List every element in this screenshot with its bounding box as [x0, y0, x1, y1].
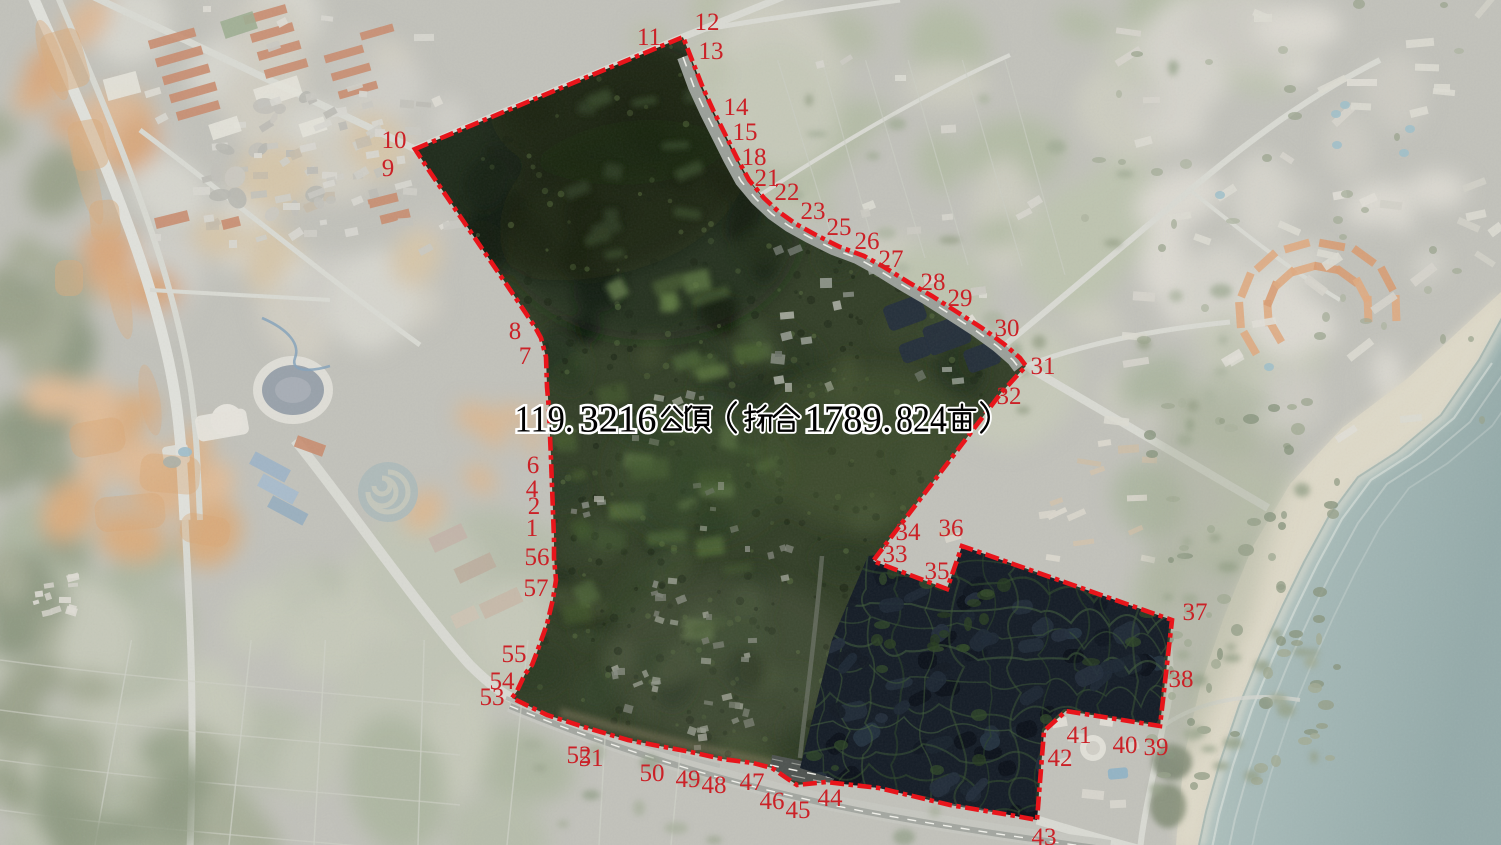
svg-text:37: 37: [1183, 599, 1208, 626]
svg-text:6: 6: [527, 452, 540, 479]
svg-text:47: 47: [740, 769, 765, 796]
svg-text:1789.: 1789.: [805, 399, 892, 441]
svg-text:25: 25: [827, 214, 852, 241]
svg-text:31: 31: [1031, 353, 1056, 380]
svg-text:12: 12: [695, 9, 720, 36]
svg-text:49: 49: [676, 766, 701, 793]
svg-text:42: 42: [1048, 745, 1073, 772]
svg-text:44: 44: [818, 785, 844, 812]
svg-text:15: 15: [733, 119, 758, 146]
svg-text:52: 52: [567, 742, 592, 769]
svg-text:34: 34: [896, 519, 922, 546]
svg-text:7: 7: [519, 343, 532, 370]
svg-text:9: 9: [382, 155, 395, 182]
svg-text:54: 54: [490, 668, 516, 695]
svg-text:50: 50: [640, 760, 665, 787]
svg-text:23: 23: [801, 198, 826, 225]
svg-text:48: 48: [702, 772, 727, 799]
svg-text:11: 11: [637, 24, 661, 51]
svg-text:13: 13: [699, 38, 724, 65]
svg-text:56: 56: [525, 544, 550, 571]
svg-text:38: 38: [1169, 666, 1194, 693]
svg-text:29: 29: [948, 285, 973, 312]
svg-text:35: 35: [925, 558, 950, 585]
svg-text:10: 10: [382, 127, 407, 154]
svg-text:22: 22: [775, 179, 800, 206]
svg-text:40: 40: [1113, 732, 1138, 759]
svg-text:119.: 119.: [515, 399, 574, 441]
svg-text:43: 43: [1032, 824, 1057, 845]
svg-text:57: 57: [524, 575, 549, 602]
svg-text:27: 27: [879, 246, 904, 273]
svg-text:28: 28: [921, 269, 946, 296]
svg-text:30: 30: [995, 315, 1020, 342]
svg-text:26: 26: [855, 228, 880, 255]
svg-text:32: 32: [997, 383, 1022, 410]
svg-text:45: 45: [786, 797, 811, 824]
svg-text:4: 4: [526, 476, 539, 503]
svg-text:8: 8: [509, 318, 522, 345]
svg-text:824: 824: [896, 399, 947, 441]
svg-text:3216: 3216: [580, 399, 657, 441]
svg-text:55: 55: [502, 641, 527, 668]
svg-text:14: 14: [724, 94, 750, 121]
svg-text:36: 36: [939, 515, 964, 542]
svg-text:39: 39: [1144, 734, 1169, 761]
